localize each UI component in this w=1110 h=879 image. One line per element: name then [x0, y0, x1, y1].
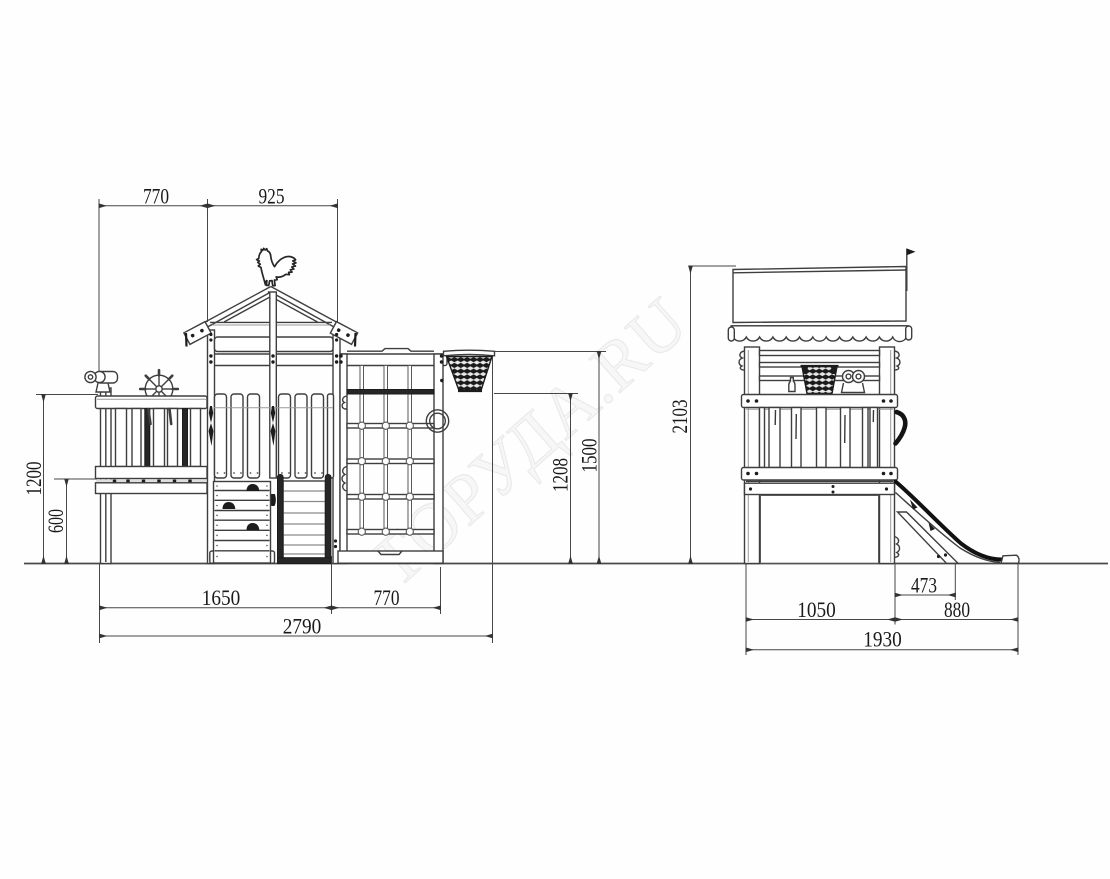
- svg-text:1050: 1050: [797, 597, 836, 622]
- svg-text:473: 473: [911, 573, 937, 598]
- svg-text:880: 880: [944, 597, 970, 622]
- svg-text:2103: 2103: [667, 400, 692, 434]
- svg-text:600: 600: [43, 509, 68, 533]
- svg-text:925: 925: [259, 184, 285, 209]
- svg-text:770: 770: [143, 184, 169, 209]
- svg-text:770: 770: [374, 585, 400, 610]
- svg-text:1650: 1650: [202, 585, 241, 610]
- svg-text:1200: 1200: [21, 462, 46, 496]
- svg-text:1208: 1208: [548, 458, 573, 492]
- svg-text:1500: 1500: [577, 439, 602, 473]
- svg-text:1930: 1930: [863, 627, 902, 652]
- svg-text:2790: 2790: [283, 614, 322, 639]
